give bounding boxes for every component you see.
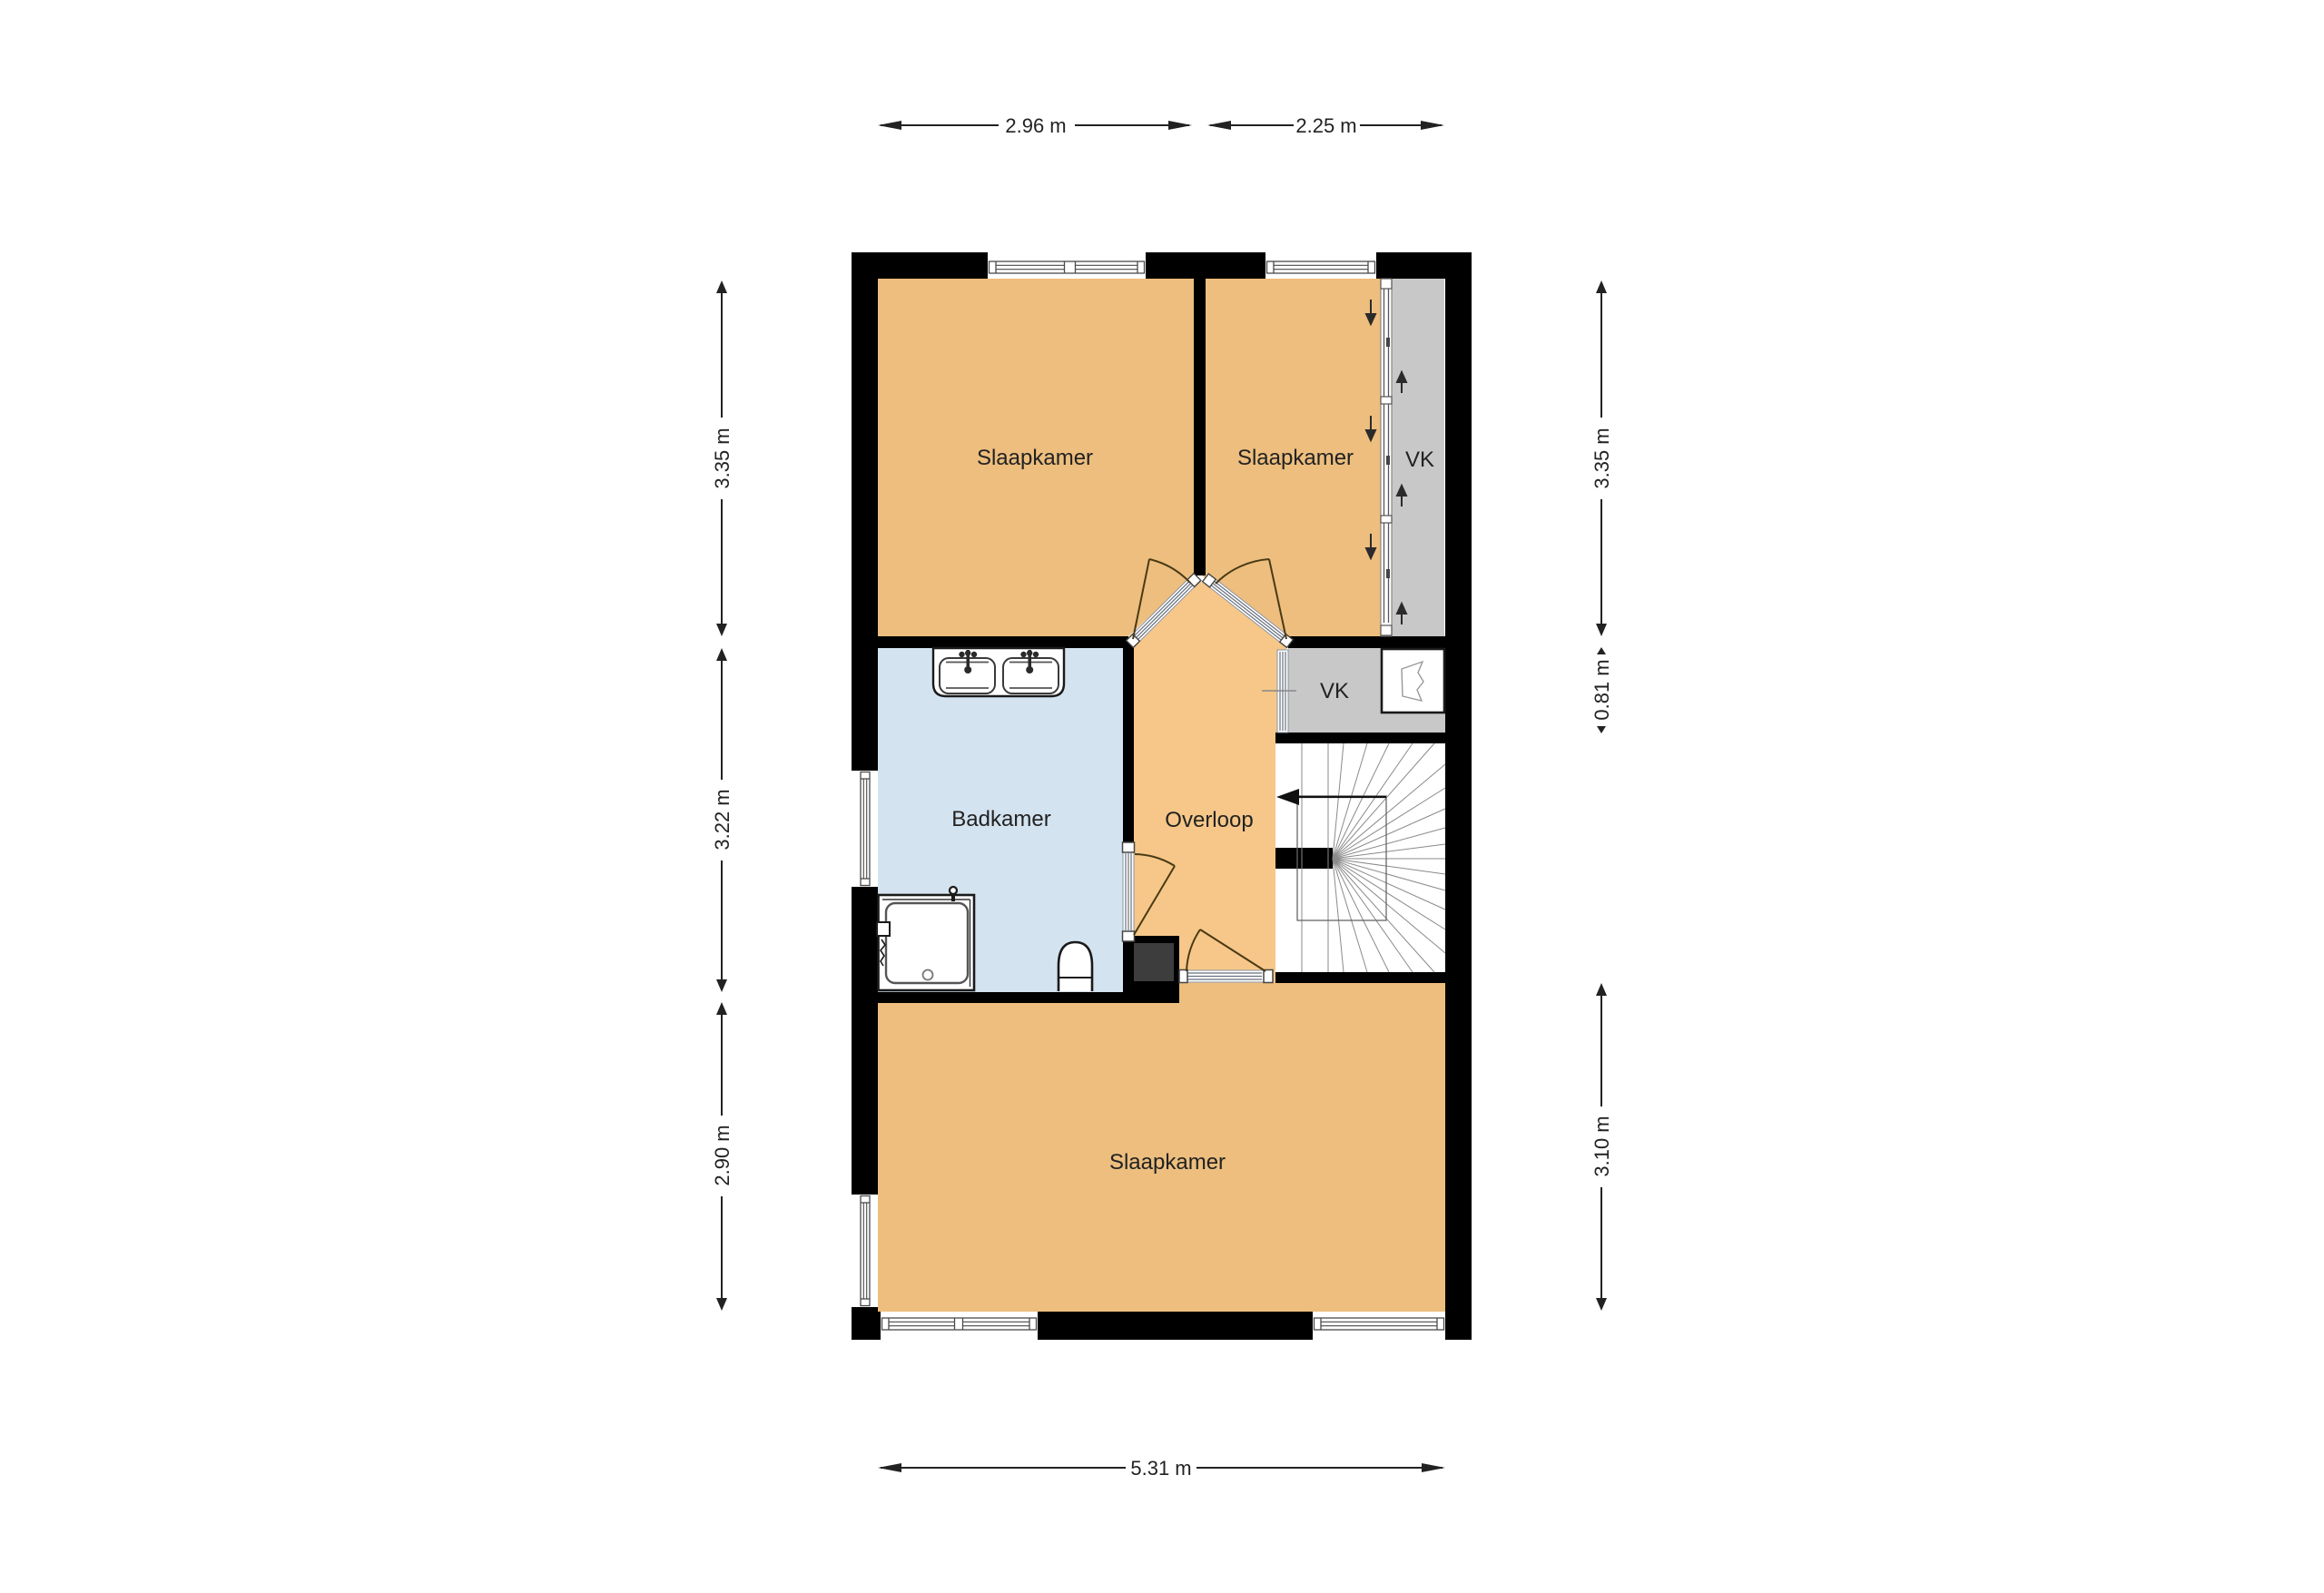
svg-text:Slaapkamer: Slaapkamer: [1237, 446, 1354, 470]
svg-text:Slaapkamer: Slaapkamer: [1109, 1150, 1226, 1175]
svg-text:2.25 m: 2.25 m: [1295, 114, 1356, 137]
svg-text:3.35 m: 3.35 m: [711, 428, 734, 488]
svg-text:VK: VK: [1405, 447, 1434, 472]
svg-text:Overloop: Overloop: [1165, 808, 1253, 832]
svg-text:0.81 m: 0.81 m: [1590, 659, 1613, 720]
svg-text:5.31 m: 5.31 m: [1130, 1457, 1191, 1480]
svg-text:VK: VK: [1320, 679, 1349, 703]
svg-text:2.90 m: 2.90 m: [711, 1125, 734, 1185]
svg-text:3.35 m: 3.35 m: [1590, 428, 1613, 488]
svg-text:2.96 m: 2.96 m: [1005, 114, 1066, 137]
svg-text:3.22 m: 3.22 m: [711, 789, 734, 850]
svg-text:Badkamer: Badkamer: [951, 807, 1050, 831]
svg-text:Slaapkamer: Slaapkamer: [977, 446, 1093, 470]
svg-text:3.10 m: 3.10 m: [1590, 1116, 1613, 1176]
